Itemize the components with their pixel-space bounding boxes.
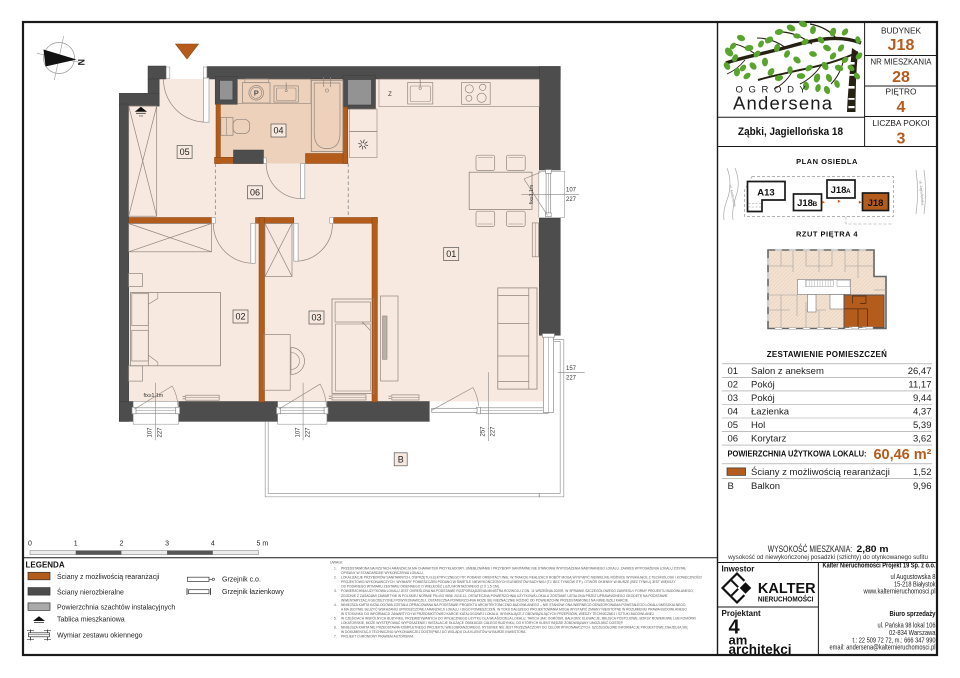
svg-text:BUDYNEK: BUDYNEK: [881, 25, 922, 35]
svg-text:TM: TM: [139, 114, 143, 118]
svg-text:26,47: 26,47: [908, 366, 932, 377]
svg-text:Pokój: Pokój: [751, 393, 775, 404]
svg-text:J18: J18: [868, 198, 884, 209]
svg-text:POWIERZCHNIA UŻYTKOWA LOKALU J: POWIERZCHNIA UŻYTKOWA LOKALU JEST OKREŚL…: [341, 588, 694, 593]
svg-text:0: 0: [28, 541, 32, 548]
svg-text:28: 28: [892, 69, 910, 86]
svg-text:Tablica mieszkaniowa: Tablica mieszkaniowa: [57, 617, 125, 624]
svg-text:1,52: 1,52: [913, 467, 932, 478]
svg-text:J18: J18: [797, 198, 813, 209]
svg-text:ZGODNIE Z ZASADAMI ZAWARTYMI W: ZGODNIE Z ZASADAMI ZAWARTYMI W POLSKIEJ …: [341, 593, 669, 598]
svg-text:4: 4: [897, 99, 906, 116]
svg-text:5,39: 5,39: [913, 420, 932, 431]
svg-text:Wymiar zestawu okiennego: Wymiar zestawu okiennego: [57, 633, 143, 640]
svg-text:3.: 3.: [334, 589, 337, 593]
svg-text:J18: J18: [831, 185, 847, 196]
svg-text:7.: 7.: [334, 635, 337, 639]
svg-text:LOKALIZACJE PRZYBORÓW SANITARN: LOKALIZACJE PRZYBORÓW SANITARNYCH, OSPRZ…: [341, 575, 702, 580]
svg-text:227: 227: [566, 197, 577, 203]
svg-text:107: 107: [148, 427, 154, 438]
svg-text:PROJEKTOWO-WYKONAWCZYCH. WYMIA: PROJEKTOWO-WYKONAWCZYCH. WYMIARY POMIESZ…: [341, 579, 676, 584]
svg-text:B: B: [398, 455, 404, 465]
svg-text:Andersena: Andersena: [733, 93, 833, 114]
svg-text:Salon z aneksem: Salon z aneksem: [751, 366, 824, 377]
svg-text:NINIEJSZA KARTA KATALOGOWA ZOS: NINIEJSZA KARTA KATALOGOWA ZOSTAŁA OPRAC…: [341, 603, 686, 607]
svg-text:N: N: [76, 59, 86, 66]
svg-text:Kalter Nieruchomości Projekt 1: Kalter Nieruchomości Projekt 19 Sp. z o.…: [823, 561, 936, 570]
svg-text:227: 227: [158, 427, 164, 438]
svg-text:3: 3: [165, 541, 169, 548]
svg-text:4,37: 4,37: [913, 407, 932, 418]
svg-text:Łazienka: Łazienka: [751, 407, 790, 418]
svg-text:03: 03: [728, 393, 739, 404]
svg-text:email: andersena@kalternieruch: email: andersena@kalternieruchomosci.pl: [830, 643, 936, 652]
svg-text:NIERUCHOMOŚCI: NIERUCHOMOŚCI: [758, 595, 814, 604]
svg-text:A MA JEDYNIE SŁUŻYĆ WSKAZANIU: A MA JEDYNIE SŁUŻYĆ WSKAZANIU UPROSZCZON…: [341, 606, 687, 611]
svg-text:9,44: 9,44: [913, 393, 932, 404]
svg-text:05: 05: [728, 420, 739, 431]
svg-text:INWENTARYZACJI GEODEZYJNEJ POW: INWENTARYZACJI GEODEZYJNEJ POWYKONAWCZEJ…: [341, 597, 629, 602]
svg-text:257: 257: [481, 426, 487, 437]
svg-text:11,17: 11,17: [908, 380, 931, 391]
svg-text:02: 02: [728, 380, 739, 391]
svg-text:06: 06: [250, 188, 260, 198]
svg-text:PLAN OSIEDLA: PLAN OSIEDLA: [796, 157, 858, 166]
svg-text:227: 227: [305, 427, 311, 438]
svg-text:Biuro sprzedaży: Biuro sprzedaży: [890, 609, 937, 618]
svg-text:ZESTAWIENIE POMIESZCZEŃ: ZESTAWIENIE POMIESZCZEŃ: [767, 350, 888, 359]
svg-text:5 m: 5 m: [257, 541, 269, 548]
svg-text:LICZBA POKOI: LICZBA POKOI: [872, 118, 929, 128]
svg-text:Balkon: Balkon: [751, 481, 780, 492]
svg-text:06: 06: [728, 434, 739, 445]
svg-text:POWIERZCHNIA UŻYTKOWA LOKALU:: POWIERZCHNIA UŻYTKOWA LOKALU:: [728, 450, 867, 459]
svg-text:NINIEJSZA KARTA NIE PRZEDSTAWI: NINIEJSZA KARTA NIE PRZEDSTAWIA KOMPLETN…: [341, 625, 688, 630]
svg-text:01: 01: [446, 249, 456, 259]
svg-text:01: 01: [728, 366, 739, 377]
svg-text:Korytarz: Korytarz: [751, 434, 787, 445]
svg-text:05: 05: [180, 147, 190, 157]
svg-text:LOKATORSKIE, MOŻE WYSTĘPOWAĆ W: LOKATORSKIE, MOŻE WYSTĘPOWAĆ WYPOSAŻENIE…: [341, 620, 624, 625]
svg-text:Hol: Hol: [751, 420, 765, 431]
svg-text:www.kalternieruchomosci.pl: www.kalternieruchomosci.pl: [863, 587, 936, 596]
svg-text:RZUT PIĘTRA 4: RZUT PIĘTRA 4: [796, 230, 858, 239]
svg-text:227: 227: [566, 375, 577, 381]
svg-text:157: 157: [566, 366, 577, 372]
svg-text:W DOKUMENTACJI TECHNICZNO-WYKO: W DOKUMENTACJI TECHNICZNO-WYKONAWCZEJ DO…: [341, 629, 526, 634]
svg-text:Ząbki, Jagiellońska 18: Ząbki, Jagiellońska 18: [738, 126, 843, 138]
svg-text:3,62: 3,62: [913, 434, 932, 445]
svg-text:5.: 5.: [334, 617, 337, 621]
svg-text:Grzejnik łazienkowy: Grzejnik łazienkowy: [222, 589, 284, 596]
svg-text:W CZĘŚCIACH WSPÓLNYCH BUDYNKU,: W CZĘŚCIACH WSPÓLNYCH BUDYNKU, PRZEWIDYW…: [341, 616, 696, 621]
svg-text:Ściany z możliwością rearanżac: Ściany z możliwością rearanżacji: [57, 572, 160, 581]
svg-text:Powierzchnia szachtów instalac: Powierzchnia szachtów instalacyjnych: [57, 605, 175, 612]
svg-text:1: 1: [74, 541, 78, 548]
svg-text:LEGENDA: LEGENDA: [26, 561, 65, 570]
svg-text:OD PODANEGO WYMIARU ZESTAWU OK: OD PODANEGO WYMIARU ZESTAWU OKIENNEGO O …: [341, 584, 500, 589]
svg-text:J18: J18: [888, 37, 915, 54]
svg-text:9,96: 9,96: [913, 481, 932, 492]
svg-text:2.: 2.: [334, 576, 337, 580]
svg-text:Pokój: Pokój: [751, 380, 775, 391]
svg-text:4: 4: [211, 541, 215, 548]
svg-text:107: 107: [566, 188, 577, 194]
svg-text:6.: 6.: [334, 626, 337, 630]
svg-text:2: 2: [119, 541, 123, 548]
svg-text:60,46 m²: 60,46 m²: [873, 447, 931, 463]
svg-text:fix≥1,1m: fix≥1,1m: [144, 393, 164, 399]
svg-text:3: 3: [897, 130, 906, 147]
svg-text:03: 03: [311, 313, 321, 323]
svg-text:4.: 4.: [334, 603, 337, 607]
svg-text:227: 227: [491, 426, 497, 437]
svg-text:P: P: [254, 89, 259, 98]
svg-text:04: 04: [273, 126, 283, 136]
svg-text:B: B: [728, 481, 734, 492]
svg-text:02: 02: [235, 312, 245, 322]
svg-text:fix≥1,1m: fix≥1,1m: [529, 185, 535, 205]
svg-text:A13: A13: [757, 188, 774, 199]
svg-text:PROJEKT CHRONIONY PRAWEM AUTOR: PROJEKT CHRONIONY PRAWEM AUTORSKIM.: [341, 635, 414, 639]
svg-text:PIĘTRO: PIĘTRO: [886, 87, 917, 97]
svg-text:W STOSUNKU DO INFORMACJI ZAWAR: W STOSUNKU DO INFORMACJI ZAWARTYCH W PRZ…: [341, 611, 655, 616]
svg-text:Ściany nierozbieralne: Ściany nierozbieralne: [57, 587, 124, 596]
svg-text:PRZEDSTAWIONA NA RZUTACH ARANŻ: PRZEDSTAWIONA NA RZUTACH ARANŻACJA MA CH…: [341, 566, 686, 571]
svg-text:OPISANY W STANDARDZIE WYKOŃCZE: OPISANY W STANDARDZIE WYKOŃCZENIA LOKALU…: [341, 571, 424, 575]
svg-text:107: 107: [295, 427, 301, 438]
svg-text:04: 04: [728, 407, 739, 418]
svg-text:UWAGI:: UWAGI:: [330, 561, 343, 565]
svg-text:1.: 1.: [334, 567, 337, 571]
svg-text:Ściany z możliwością rearanżac: Ściany z możliwością rearanżacji: [751, 466, 890, 478]
svg-text:Grzejnik c.o.: Grzejnik c.o.: [222, 577, 261, 584]
svg-text:Projektant: Projektant: [722, 609, 761, 618]
svg-text:Inwestor: Inwestor: [722, 565, 755, 574]
svg-text:architekci: architekci: [729, 642, 792, 657]
svg-text:B: B: [813, 201, 818, 208]
svg-text:NR MIESZKANIA: NR MIESZKANIA: [871, 57, 932, 67]
svg-text:A: A: [846, 188, 851, 195]
svg-text:Z: Z: [388, 92, 392, 98]
